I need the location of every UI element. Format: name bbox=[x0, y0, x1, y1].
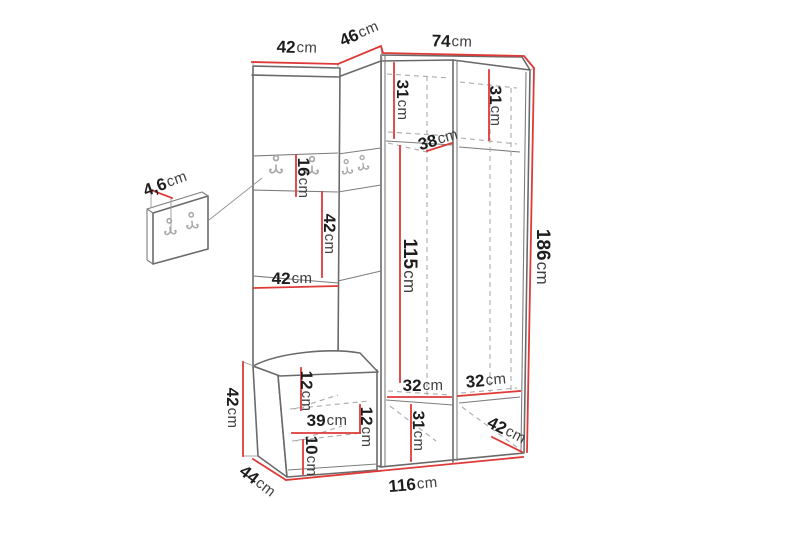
dim-label-upper-comp-left: 31cm bbox=[394, 80, 413, 121]
dim-label-open-width: 42cm bbox=[272, 269, 313, 288]
dim-label-bench-inner-width: 39cm bbox=[307, 411, 348, 430]
dim-label-lower-inner-left: 32cm bbox=[403, 376, 444, 395]
dim-label-lower-comp-height: 31cm bbox=[410, 411, 429, 452]
dim-label-door-height: 115cm bbox=[400, 238, 421, 293]
dim-label-upper-comp-right: 31cm bbox=[487, 86, 506, 127]
dim-label-bench-top-gap: 12cm bbox=[298, 371, 317, 412]
dim-label-bench-bottom-gap: 10cm bbox=[303, 436, 322, 477]
dim-label-top-right-width: 74cm bbox=[431, 31, 472, 51]
furniture-dimension-drawing: 42cm 46cm 74cm 31cm 31cm 38cm 16cm 42cm … bbox=[0, 0, 800, 533]
dim-label-hook-row-height: 16cm bbox=[295, 158, 314, 199]
dim-label-open-height: 42cm bbox=[321, 214, 340, 255]
diagram-canvas: 42cm 46cm 74cm 31cm 31cm 38cm 16cm 42cm … bbox=[0, 0, 800, 533]
dim-label-total-height: 186cm bbox=[533, 229, 554, 285]
dim-label-bench-side-gap: 12cm bbox=[358, 407, 377, 448]
dim-label-top-left-width: 42cm bbox=[276, 37, 317, 57]
dim-label-bench-height: 42cm bbox=[224, 388, 243, 429]
